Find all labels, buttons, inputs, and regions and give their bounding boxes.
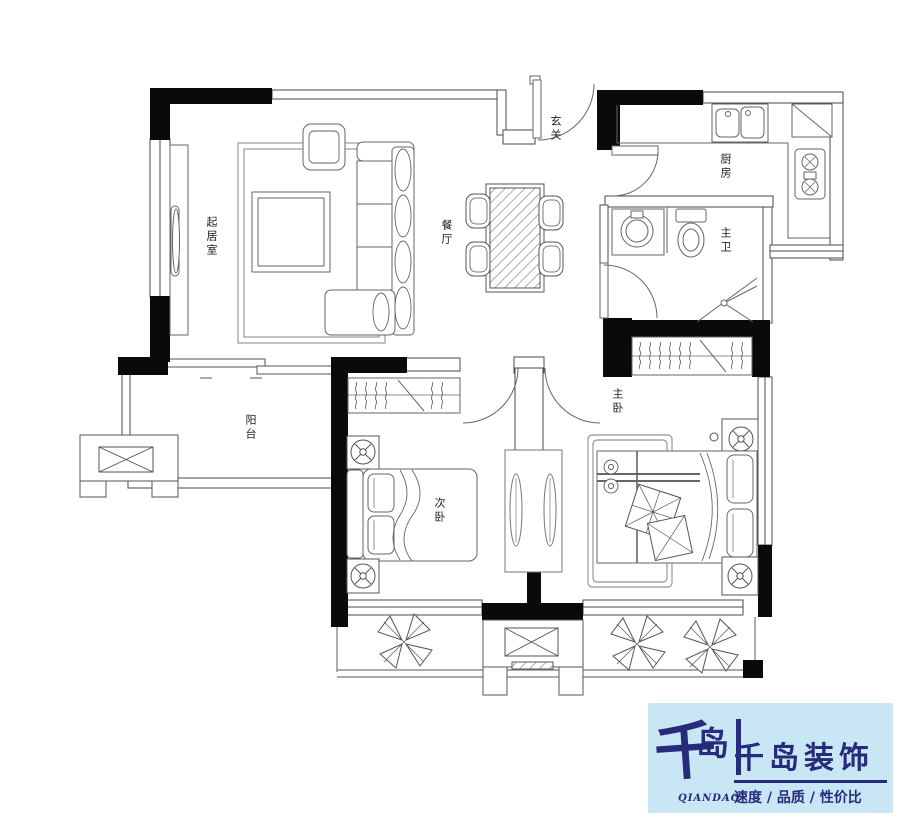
room-label-dining: 餐厅 <box>441 219 452 247</box>
sofa <box>325 142 414 335</box>
wardrobe-second-bedroom <box>348 378 460 413</box>
company-logo: 千 岛 QIANDAO 千岛装饰 速度 / 品质 / 性价比 <box>648 703 893 813</box>
room-label-master-bedroom: 主卧 <box>612 388 623 416</box>
armchair <box>303 124 345 170</box>
company-name: 千岛装饰 <box>734 733 890 777</box>
coffee-table <box>252 192 330 272</box>
ac-platform-bay <box>483 620 583 695</box>
company-tagline: 速度 / 品质 / 性价比 <box>734 787 890 807</box>
tv-cabinet <box>170 145 188 335</box>
room-label-living-room: 起居室 <box>206 216 217 258</box>
room-label-second-bedroom: 次卧 <box>434 497 445 525</box>
floor-plan-page: 起居室 餐厅 玄关 厨房 主卫 阳台 次卧 主卧 千 岛 QIANDAO 千岛装… <box>0 0 900 821</box>
bathroom-fixtures <box>612 207 706 257</box>
room-label-kitchen: 厨房 <box>720 153 731 181</box>
bed-second-bedroom <box>347 469 477 561</box>
logo-divider <box>734 780 887 783</box>
shower <box>697 278 757 322</box>
dining-table <box>486 184 544 292</box>
stove <box>795 149 825 199</box>
logo-text-block: 千岛装饰 速度 / 品质 / 性价比 <box>734 733 890 807</box>
balcony-sliding-door <box>167 359 335 378</box>
room-label-entry: 玄关 <box>550 115 561 143</box>
floor-plan-drawing <box>0 0 900 821</box>
room-label-balcony: 阳台 <box>245 414 256 442</box>
logo-mark-caption: QIANDAO <box>678 793 740 804</box>
room-label-master-bath: 主卫 <box>720 227 731 255</box>
fridge <box>792 104 832 137</box>
wardrobe-master-bedroom <box>632 337 752 375</box>
hall-cabinet <box>505 450 562 572</box>
kitchen-sink <box>712 104 768 142</box>
